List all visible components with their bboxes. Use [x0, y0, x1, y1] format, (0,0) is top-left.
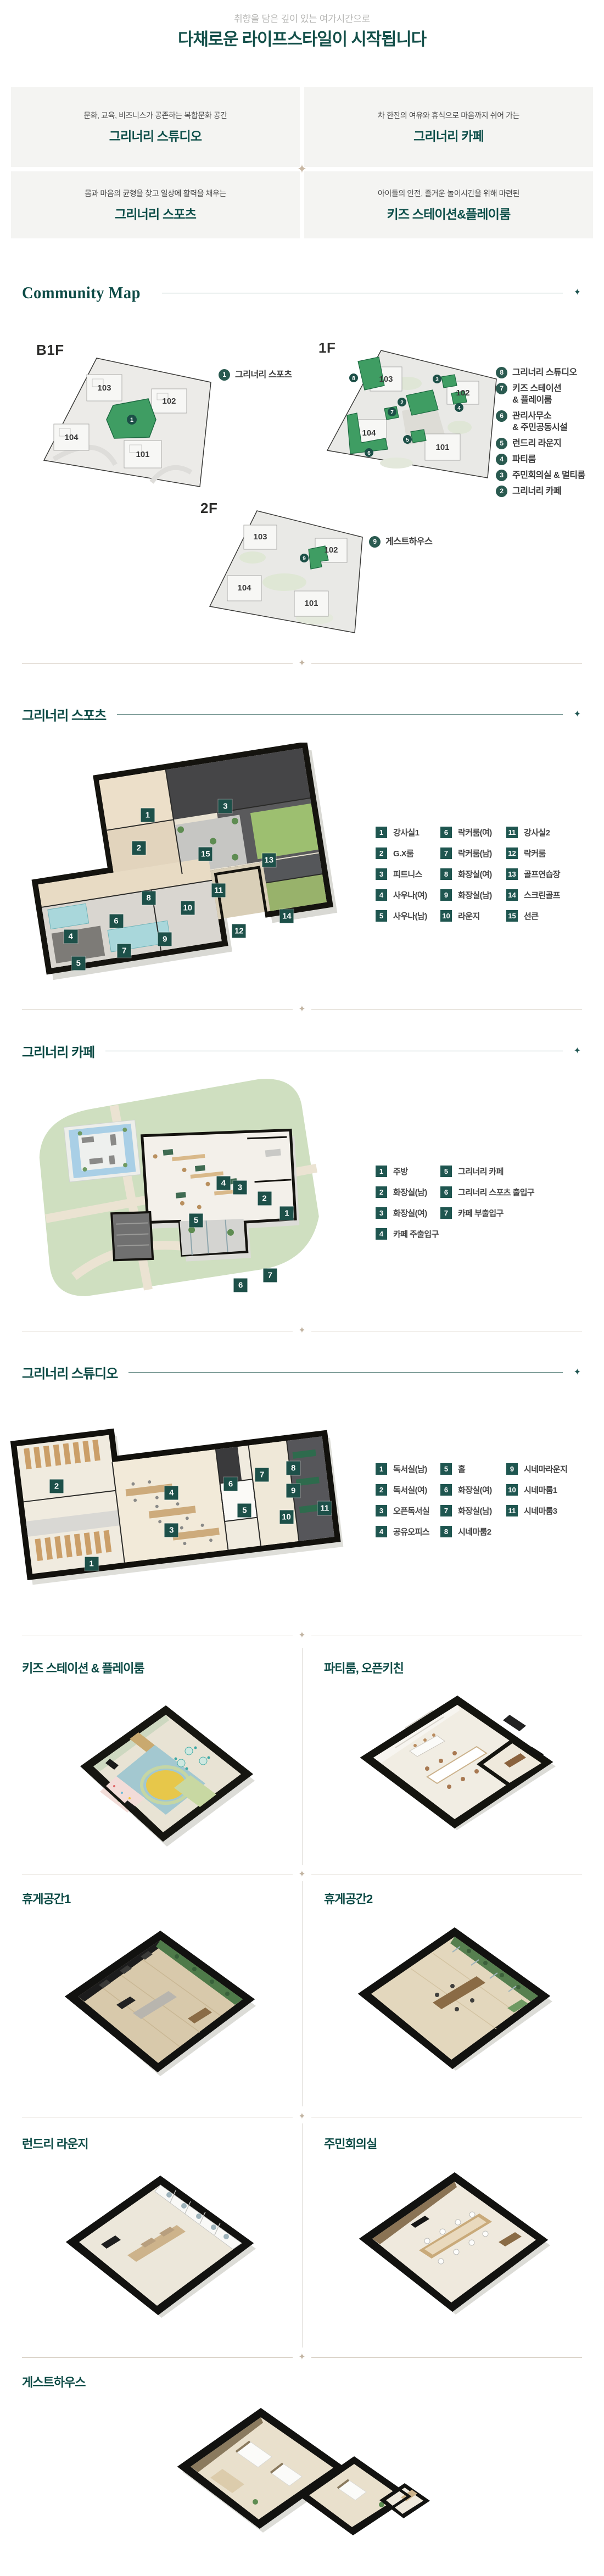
- feature-card-title: 키즈 스테이션&플레이룸: [387, 204, 510, 222]
- legend-item: 7락커룸(남): [440, 847, 492, 859]
- legend-item: 4사우나(여): [376, 889, 427, 901]
- legend-number-box: 3: [376, 1505, 387, 1516]
- section-divider-line: [162, 293, 563, 293]
- legend-label: 골프연습장: [524, 868, 560, 880]
- svg-text:7: 7: [390, 410, 394, 416]
- column-divider: [302, 1881, 303, 2106]
- legend-item: 8화장실(여): [440, 868, 492, 880]
- legend-label: 피트니스: [393, 868, 422, 880]
- legend-number-box: 15: [506, 910, 518, 922]
- legend-number-box: 3: [376, 868, 387, 880]
- legend-label: 라운지: [458, 910, 480, 922]
- section-divider: ✦: [22, 1631, 582, 1640]
- legend-label: 강사실1: [393, 827, 419, 838]
- legend-number-badge: 9: [369, 536, 381, 548]
- legend-item: 2G.X룸: [376, 847, 427, 859]
- legend-item: 10라운지: [440, 910, 492, 922]
- svg-text:5: 5: [406, 437, 409, 443]
- diamond-icon: ✦: [293, 1870, 311, 1879]
- building-label: 102: [324, 545, 338, 555]
- diamond-icon: ✦: [574, 1368, 581, 1377]
- legend-label: 그리너리 스포츠: [235, 369, 292, 381]
- legend-label: 홀: [458, 1463, 465, 1475]
- legend-item: 4카페 주출입구: [376, 1228, 439, 1240]
- legend-number-box: 14: [506, 889, 518, 901]
- diamond-icon: ✦: [293, 2353, 311, 2362]
- map-legend-item: 6 관리사무소 & 주민공동시설: [496, 410, 585, 433]
- legend-number-badge: 3: [496, 470, 507, 481]
- legend-item: 5홀: [440, 1463, 492, 1475]
- legend-label: 화장실(여): [458, 868, 492, 880]
- legend-label: 선큰: [524, 910, 538, 922]
- legend-label: 독서실(여): [393, 1484, 427, 1496]
- legend-label: 카페 부출입구: [458, 1207, 504, 1219]
- feature-card-desc: 몸과 마음의 균형을 찾고 일상에 활력을 채우는: [85, 188, 226, 199]
- column-divider: [302, 1648, 303, 1865]
- studio-legend-col2: 5홀6화장실(여)7화장실(남)8시네마룸2: [440, 1463, 492, 1537]
- 2f-map-svg: 103 102 104 101 9: [202, 505, 369, 650]
- legend-number-box: 5: [440, 1166, 452, 1177]
- meeting-title: 주민회의실: [324, 2134, 377, 2152]
- rest2-floorplan-svg: [345, 1915, 566, 2081]
- legend-item: 2화장실(남): [376, 1186, 439, 1198]
- legend-item: 15선큰: [506, 910, 560, 922]
- legend-label: 화장실(남): [393, 1186, 427, 1198]
- legend-item: 7화장실(남): [440, 1505, 492, 1516]
- legend-number-box: 7: [440, 1505, 452, 1516]
- svg-text:4: 4: [457, 405, 461, 411]
- building-label: 101: [304, 599, 318, 608]
- section-divider-line: [128, 1372, 562, 1373]
- legend-number-box: 3: [376, 1207, 387, 1219]
- legend-item: 11시네마룸3: [506, 1505, 567, 1516]
- legend-number-box: 11: [506, 1505, 518, 1516]
- legend-label: 키즈 스테이션 & 플레이룸: [512, 383, 561, 406]
- 2f-legend: 9 게스트하우스: [369, 536, 432, 548]
- legend-number-box: 1: [376, 1166, 387, 1177]
- guest-title: 게스트하우스: [22, 2373, 85, 2390]
- map-legend-item: 2 그리너리 카페: [496, 486, 585, 497]
- legend-item: 13골프연습장: [506, 868, 560, 880]
- legend-number-badge: 7: [496, 383, 507, 394]
- legend-number-badge: 1: [219, 369, 230, 381]
- cafe-floorplan-illustration: 1234567: [10, 1067, 340, 1302]
- legend-number-box: 8: [440, 1526, 452, 1537]
- feature-card-title: 그리너리 스포츠: [115, 204, 196, 222]
- studio-legend-col1: 1독서실(남)2독서실(여)3오픈독서실4공유오피스: [376, 1463, 429, 1537]
- legend-label: 시네마라운지: [524, 1463, 567, 1475]
- kids-floorplan-svg: [61, 1693, 268, 1851]
- page: 취향을 담은 깊이 있는 여가시간으로 다채로운 라이프스타일이 시작됩니다 문…: [0, 0, 604, 2576]
- legend-number-box: 10: [506, 1484, 518, 1496]
- legend-number-box: 11: [506, 827, 518, 838]
- legend-label: 화장실(남): [458, 889, 492, 901]
- legend-number-box: 8: [440, 868, 452, 880]
- guest-floorplan-illustration: [167, 2392, 433, 2574]
- legend-item: 9시네마라운지: [506, 1463, 567, 1475]
- legend-label: 화장실(여): [458, 1484, 492, 1496]
- legend-label: 오픈독서실: [393, 1505, 429, 1516]
- legend-item: 3오픈독서실: [376, 1505, 429, 1516]
- legend-label: 락커룸: [524, 847, 546, 859]
- 1f-map-illustration: 103 102 104 101 8 7 6 5 4 3 2: [320, 345, 503, 494]
- cafe-floorplan-svg: [10, 1067, 340, 1302]
- 1f-legend: 8 그리너리 스튜디오 7 키즈 스테이션 & 플레이룸 6 관리사무소 & 주…: [496, 367, 585, 497]
- legend-label: 게스트하우스: [385, 536, 432, 548]
- laundry-floorplan-svg: [51, 2162, 271, 2328]
- map-legend-item: 3 주민회의실 & 멀티룸: [496, 470, 585, 481]
- party-floorplan-svg: [345, 1686, 571, 1836]
- diamond-icon: ✦: [293, 2112, 311, 2121]
- rest2-floorplan-illustration: [345, 1915, 566, 2081]
- legend-number-box: 6: [440, 1186, 452, 1198]
- cafe-legend-col1: 1주방2화장실(남)3화장실(여)4카페 주출입구: [376, 1166, 439, 1240]
- section-divider: ✦: [22, 1326, 582, 1335]
- building-label: 103: [379, 375, 393, 384]
- legend-label: 파티룸: [512, 454, 536, 465]
- svg-text:9: 9: [303, 556, 306, 562]
- legend-item: 3화장실(여): [376, 1207, 439, 1219]
- building-label: 103: [97, 383, 111, 393]
- legend-item: 4공유오피스: [376, 1526, 429, 1537]
- section-title: 그리너리 스튜디오: [22, 1363, 118, 1382]
- studio-legend-col3: 9시네마라운지10시네마룸111시네마룸3: [506, 1463, 567, 1516]
- b1f-map-illustration: 103 102 104 101 1: [32, 352, 215, 501]
- feature-card-kids: 아이들의 안전, 즐거운 놀이시간을 위해 마련된 키즈 스테이션&플레이룸: [304, 171, 593, 238]
- sports-legend-col2: 6락커룸(여)7락커룸(남)8화장실(여)9화장실(남)10라운지: [440, 827, 492, 922]
- party-title: 파티룸, 오픈키친: [324, 1659, 404, 1676]
- map-legend-item: 4 파티룸: [496, 454, 585, 465]
- legend-number-box: 4: [376, 889, 387, 901]
- legend-label: 그리너리 카페: [512, 486, 561, 497]
- legend-label: 시네마룸3: [524, 1505, 557, 1516]
- legend-label: G.X룸: [393, 847, 413, 859]
- laundry-title: 런드리 라운지: [22, 2134, 88, 2152]
- legend-item: 6화장실(여): [440, 1484, 492, 1496]
- legend-label: 화장실(남): [458, 1505, 492, 1516]
- diamond-icon: ✦: [293, 1631, 311, 1640]
- map-legend-item: 1 그리너리 스포츠: [219, 369, 292, 381]
- rest2-title: 휴게공간2: [324, 1889, 372, 1907]
- legend-number-box: 9: [506, 1463, 518, 1475]
- building-label: 102: [162, 397, 176, 406]
- legend-item: 2독서실(여): [376, 1484, 429, 1496]
- meeting-floorplan-svg: [345, 2160, 566, 2326]
- studio-floorplan-svg: [4, 1395, 353, 1617]
- diamond-icon: ✦: [293, 1326, 311, 1335]
- legend-label: 락커룸(여): [458, 827, 492, 838]
- rest1-title: 휴게공간1: [22, 1889, 70, 1907]
- feature-card-desc: 차 한잔의 여유와 휴식으로 마음까지 쉬어 가는: [378, 110, 519, 121]
- kids-title: 키즈 스테이션 & 플레이룸: [22, 1659, 144, 1676]
- legend-label: 화장실(여): [393, 1207, 427, 1219]
- svg-text:2: 2: [400, 400, 404, 406]
- legend-item: 5그리너리 카페: [440, 1166, 534, 1177]
- map-legend-item: 5 런드리 라운지: [496, 438, 585, 449]
- legend-number-badge: 6: [496, 410, 507, 422]
- section-divider-line: [105, 1051, 562, 1051]
- legend-number-box: 5: [376, 910, 387, 922]
- diamond-icon: ✦: [297, 163, 307, 175]
- legend-label: 시네마룸1: [524, 1484, 557, 1496]
- section-divider: ✦: [22, 1870, 582, 1879]
- legend-number-box: 6: [440, 1484, 452, 1496]
- diamond-icon: ✦: [574, 1047, 581, 1056]
- feature-card-sports: 몸과 마음의 균형을 찾고 일상에 활력을 채우는 그리너리 스포츠: [11, 171, 300, 238]
- svg-text:6: 6: [367, 450, 371, 456]
- legend-number-badge: 8: [496, 367, 507, 378]
- b1f-legend: 1 그리너리 스포츠: [219, 369, 292, 381]
- legend-item: 12락커룸: [506, 847, 560, 859]
- legend-number-box: 1: [376, 827, 387, 838]
- section-title: 그리너리 스포츠: [22, 705, 106, 724]
- studio-header: 그리너리 스튜디오 ✦: [22, 1363, 581, 1382]
- legend-item: 6그리너리 스포츠 출입구: [440, 1186, 534, 1198]
- legend-number-box: 4: [376, 1526, 387, 1537]
- sports-legend-col3: 11강사실212락커룸13골프연습장14스크린골프15선큰: [506, 827, 560, 922]
- laundry-floorplan-illustration: [51, 2162, 271, 2328]
- legend-number-badge: 2: [496, 486, 507, 497]
- sports-floorplan-illustration: 123456789101112131415: [15, 743, 340, 980]
- legend-label: 락커룸(남): [458, 847, 492, 859]
- sports-header: 그리너리 스포츠 ✦: [22, 705, 581, 724]
- kids-floorplan-illustration: [61, 1693, 268, 1851]
- legend-number-badge: 4: [496, 454, 507, 465]
- map-legend-item: 8 그리너리 스튜디오: [496, 367, 585, 378]
- diamond-icon: ✦: [293, 1005, 311, 1014]
- section-title: Community Map: [22, 283, 141, 303]
- map-legend-item: 7 키즈 스테이션 & 플레이룸: [496, 383, 585, 406]
- legend-label: 사우나(여): [393, 889, 427, 901]
- map-legend-item: 9 게스트하우스: [369, 536, 432, 548]
- b1f-map-svg: 103 102 104 101 1: [32, 352, 215, 501]
- legend-number-box: 5: [440, 1463, 452, 1475]
- legend-number-box: 2: [376, 1186, 387, 1198]
- diamond-icon: ✦: [574, 710, 581, 719]
- legend-label: 카페 주출입구: [393, 1228, 439, 1240]
- legend-item: 5사우나(남): [376, 910, 427, 922]
- section-divider: ✦: [22, 2353, 582, 2362]
- legend-label: 그리너리 스포츠 출입구: [458, 1186, 534, 1198]
- building-label: 104: [237, 583, 251, 593]
- section-divider: ✦: [22, 659, 582, 668]
- feature-card-cafe: 차 한잔의 여유와 휴식으로 마음까지 쉬어 가는 그리너리 카페: [304, 87, 593, 167]
- legend-label: 그리너리 스튜디오: [512, 367, 577, 378]
- legend-label: 스크린골프: [524, 889, 560, 901]
- sports-legend-col1: 1강사실12G.X룸3피트니스4사우나(여)5사우나(남): [376, 827, 427, 922]
- legend-number-badge: 5: [496, 438, 507, 449]
- cafe-header: 그리너리 카페 ✦: [22, 1041, 581, 1061]
- legend-item: 10시네마룸1: [506, 1484, 567, 1496]
- feature-card-title: 그리너리 스튜디오: [109, 126, 202, 144]
- feature-card-title: 그리너리 카페: [413, 126, 484, 144]
- party-floorplan-illustration: [345, 1686, 571, 1836]
- feature-card-studio: 문화, 교육, 비즈니스가 공존하는 복합문화 공간 그리너리 스튜디오: [11, 87, 300, 167]
- legend-number-box: 12: [506, 847, 518, 859]
- building-label: 103: [253, 532, 267, 542]
- legend-item: 6락커룸(여): [440, 827, 492, 838]
- legend-item: 8시네마룸2: [440, 1526, 492, 1537]
- guest-floorplan-svg: [167, 2392, 433, 2574]
- legend-label: 시네마룸2: [458, 1526, 491, 1537]
- svg-text:3: 3: [435, 377, 439, 383]
- 1f-map-svg: 103 102 104 101 8 7 6 5 4 3 2: [320, 345, 503, 494]
- legend-item: 9화장실(남): [440, 889, 492, 901]
- legend-label: 주방: [393, 1166, 407, 1177]
- feature-card-desc: 문화, 교육, 비즈니스가 공존하는 복합문화 공간: [83, 110, 227, 121]
- legend-label: 런드리 라운지: [512, 438, 561, 449]
- legend-number-box: 9: [440, 889, 452, 901]
- column-divider: [302, 2123, 303, 2348]
- sports-floorplan-svg: [15, 743, 340, 980]
- cafe-legend-col2: 5그리너리 카페6그리너리 스포츠 출입구7카페 부출입구: [440, 1166, 534, 1219]
- legend-number-box: 13: [506, 868, 518, 880]
- legend-number-box: 7: [440, 847, 452, 859]
- building-label: 102: [456, 388, 469, 398]
- page-subtitle: 취향을 담은 깊이 있는 여가시간으로: [0, 11, 604, 25]
- legend-item: 1강사실1: [376, 827, 427, 838]
- legend-number-box: 1: [376, 1463, 387, 1475]
- building-label: 104: [64, 433, 79, 442]
- section-divider: ✦: [22, 1005, 582, 1014]
- page-title: 다채로운 라이프스타일이 시작됩니다: [0, 25, 604, 50]
- meeting-floorplan-illustration: [345, 2160, 566, 2326]
- legend-label: 사우나(남): [393, 910, 427, 922]
- legend-label: 주민회의실 & 멀티룸: [512, 470, 585, 481]
- studio-floorplan-illustration: 1234567891011: [4, 1395, 353, 1617]
- legend-label: 관리사무소 & 주민공동시설: [512, 410, 567, 433]
- building-label: 104: [362, 428, 376, 438]
- svg-text:8: 8: [352, 376, 355, 382]
- section-divider-line: [117, 714, 562, 715]
- legend-number-box: 10: [440, 910, 452, 922]
- section-title: 그리너리 카페: [22, 1041, 94, 1061]
- building-label: 101: [136, 450, 149, 459]
- community-map-header: Community Map ✦: [22, 283, 581, 303]
- legend-number-box: 2: [376, 1484, 387, 1496]
- legend-item: 14스크린골프: [506, 889, 560, 901]
- legend-number-box: 7: [440, 1207, 452, 1219]
- legend-item: 3피트니스: [376, 868, 427, 880]
- diamond-icon: ✦: [574, 288, 581, 297]
- legend-number-box: 6: [440, 827, 452, 838]
- 2f-map-illustration: 103 102 104 101 9: [202, 505, 369, 650]
- svg-text:1: 1: [130, 417, 133, 423]
- legend-label: 공유오피스: [393, 1526, 429, 1537]
- legend-item: 1주방: [376, 1166, 439, 1177]
- building-label: 101: [435, 443, 449, 452]
- legend-label: 강사실2: [524, 827, 550, 838]
- diamond-icon: ✦: [293, 659, 311, 668]
- legend-label: 그리너리 카페: [458, 1166, 504, 1177]
- legend-item: 7카페 부출입구: [440, 1207, 534, 1219]
- rest1-floorplan-illustration: [51, 1917, 271, 2083]
- legend-item: 1독서실(남): [376, 1463, 429, 1475]
- feature-card-desc: 아이들의 안전, 즐거운 놀이시간을 위해 마련된: [378, 188, 519, 199]
- legend-label: 독서실(남): [393, 1463, 427, 1475]
- rest1-floorplan-svg: [51, 1917, 271, 2083]
- section-divider: ✦: [22, 2112, 582, 2121]
- legend-number-box: 2: [376, 847, 387, 859]
- legend-number-box: 4: [376, 1228, 387, 1240]
- legend-item: 11강사실2: [506, 827, 560, 838]
